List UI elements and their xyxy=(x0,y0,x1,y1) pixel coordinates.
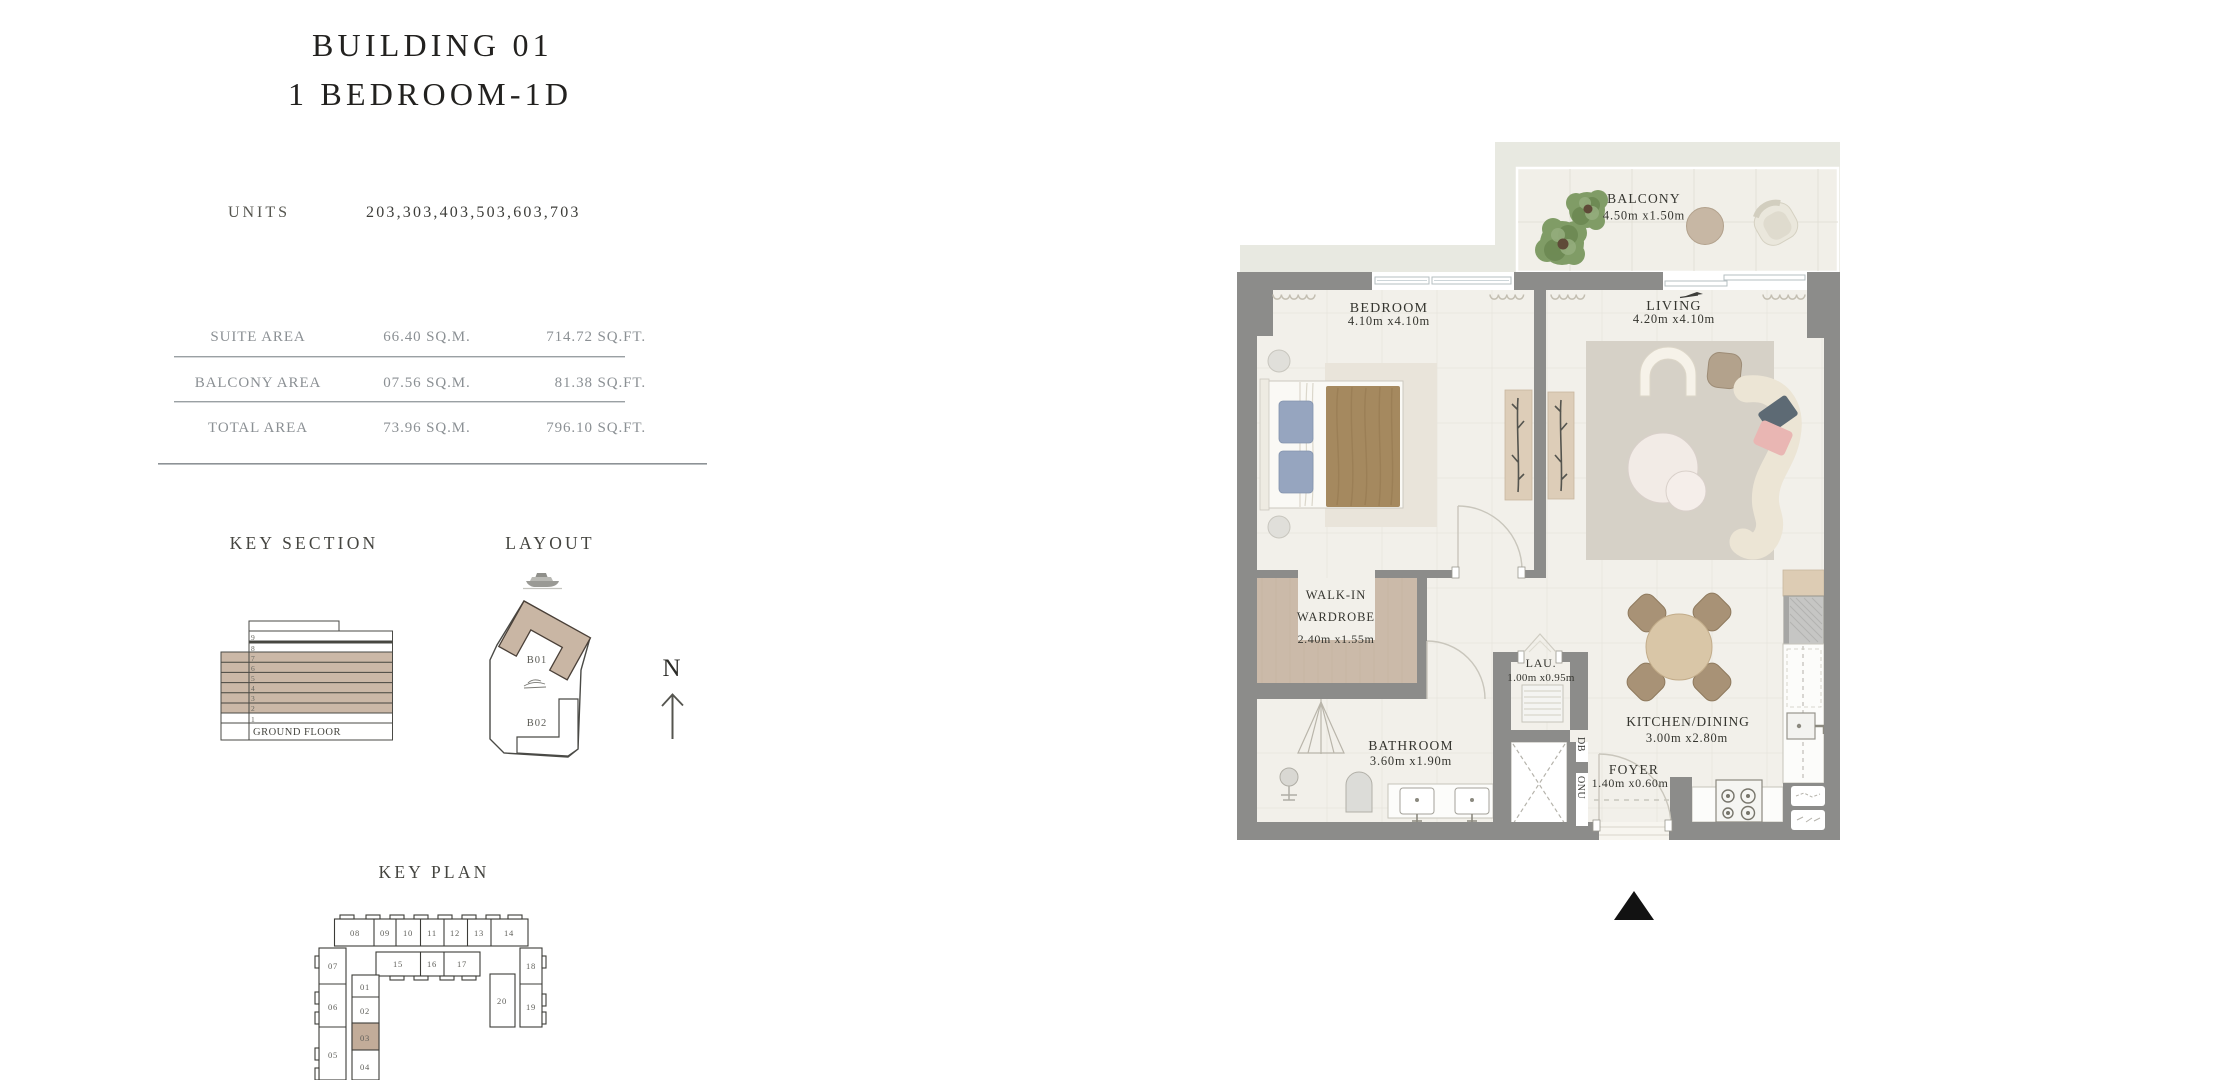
svg-text:02: 02 xyxy=(360,1006,370,1016)
svg-text:2: 2 xyxy=(251,704,255,713)
svg-text:13: 13 xyxy=(474,928,484,938)
svg-text:01: 01 xyxy=(360,982,370,992)
svg-text:LAYOUT: LAYOUT xyxy=(505,533,595,553)
svg-text:4.20m x4.10m: 4.20m x4.10m xyxy=(1633,312,1715,326)
svg-text:17: 17 xyxy=(457,959,467,969)
svg-text:203,303,403,503,603,703: 203,303,403,503,603,703 xyxy=(366,204,581,221)
svg-text:N: N xyxy=(662,655,681,682)
svg-text:TOTAL AREA: TOTAL AREA xyxy=(208,420,308,436)
svg-text:714.72 SQ.FT.: 714.72 SQ.FT. xyxy=(546,329,646,345)
svg-text:LAU.: LAU. xyxy=(1526,656,1557,670)
svg-text:07.56 SQ.M.: 07.56 SQ.M. xyxy=(383,375,470,391)
svg-text:BALCONY: BALCONY xyxy=(1607,191,1681,206)
svg-text:1 BEDROOM-1D: 1 BEDROOM-1D xyxy=(288,76,572,112)
svg-text:04: 04 xyxy=(360,1062,370,1072)
svg-text:DB: DB xyxy=(1575,737,1586,752)
svg-text:9: 9 xyxy=(251,633,255,642)
svg-text:06: 06 xyxy=(328,1002,338,1012)
svg-text:BALCONY AREA: BALCONY AREA xyxy=(195,375,322,391)
svg-text:73.96 SQ.M.: 73.96 SQ.M. xyxy=(383,420,470,436)
svg-text:08: 08 xyxy=(350,928,360,938)
svg-text:3.00m x2.80m: 3.00m x2.80m xyxy=(1646,731,1728,745)
svg-text:UNITS: UNITS xyxy=(228,204,290,221)
svg-text:09: 09 xyxy=(380,928,390,938)
svg-text:5: 5 xyxy=(251,674,255,683)
svg-text:B02: B02 xyxy=(527,718,548,729)
svg-text:16: 16 xyxy=(427,959,437,969)
svg-text:1.40m x0.60m: 1.40m x0.60m xyxy=(1592,776,1669,790)
svg-text:05: 05 xyxy=(328,1050,338,1060)
svg-text:GROUND FLOOR: GROUND FLOOR xyxy=(253,727,341,738)
svg-text:WARDROBE: WARDROBE xyxy=(1297,610,1375,624)
svg-text:3: 3 xyxy=(251,694,255,703)
svg-text:10: 10 xyxy=(403,928,413,938)
svg-text:19: 19 xyxy=(526,1002,536,1012)
svg-text:FOYER: FOYER xyxy=(1609,762,1659,777)
svg-text:12: 12 xyxy=(450,928,460,938)
svg-text:4.10m x4.10m: 4.10m x4.10m xyxy=(1348,314,1430,328)
svg-text:B01: B01 xyxy=(527,655,548,666)
svg-text:796.10 SQ.FT.: 796.10 SQ.FT. xyxy=(546,420,646,436)
svg-text:BUILDING 01: BUILDING 01 xyxy=(312,27,553,63)
svg-text:KITCHEN/DINING: KITCHEN/DINING xyxy=(1626,714,1750,729)
svg-text:2.40m x1.55m: 2.40m x1.55m xyxy=(1298,632,1375,646)
svg-text:81.38 SQ.FT.: 81.38 SQ.FT. xyxy=(555,375,646,391)
svg-text:6: 6 xyxy=(251,664,255,673)
svg-text:18: 18 xyxy=(526,961,536,971)
svg-text:ONU: ONU xyxy=(1575,776,1586,799)
svg-text:7: 7 xyxy=(251,654,255,663)
svg-text:3.60m x1.90m: 3.60m x1.90m xyxy=(1370,754,1452,768)
svg-text:WALK-IN: WALK-IN xyxy=(1306,588,1366,602)
svg-text:14: 14 xyxy=(504,928,514,938)
svg-text:07: 07 xyxy=(328,961,338,971)
svg-text:20: 20 xyxy=(497,996,507,1006)
svg-text:15: 15 xyxy=(393,959,403,969)
svg-text:11: 11 xyxy=(427,928,437,938)
svg-text:SUITE AREA: SUITE AREA xyxy=(210,329,305,345)
svg-text:1.00m x0.95m: 1.00m x0.95m xyxy=(1507,672,1575,684)
svg-text:BATHROOM: BATHROOM xyxy=(1368,738,1453,753)
svg-text:8: 8 xyxy=(251,644,255,653)
svg-text:4.50m x1.50m: 4.50m x1.50m xyxy=(1603,209,1685,223)
svg-text:1: 1 xyxy=(251,715,255,724)
svg-text:KEY SECTION: KEY SECTION xyxy=(230,533,379,553)
svg-text:66.40 SQ.M.: 66.40 SQ.M. xyxy=(383,329,470,345)
svg-text:4: 4 xyxy=(251,684,255,693)
svg-text:KEY PLAN: KEY PLAN xyxy=(379,862,490,882)
svg-text:03: 03 xyxy=(360,1033,370,1043)
